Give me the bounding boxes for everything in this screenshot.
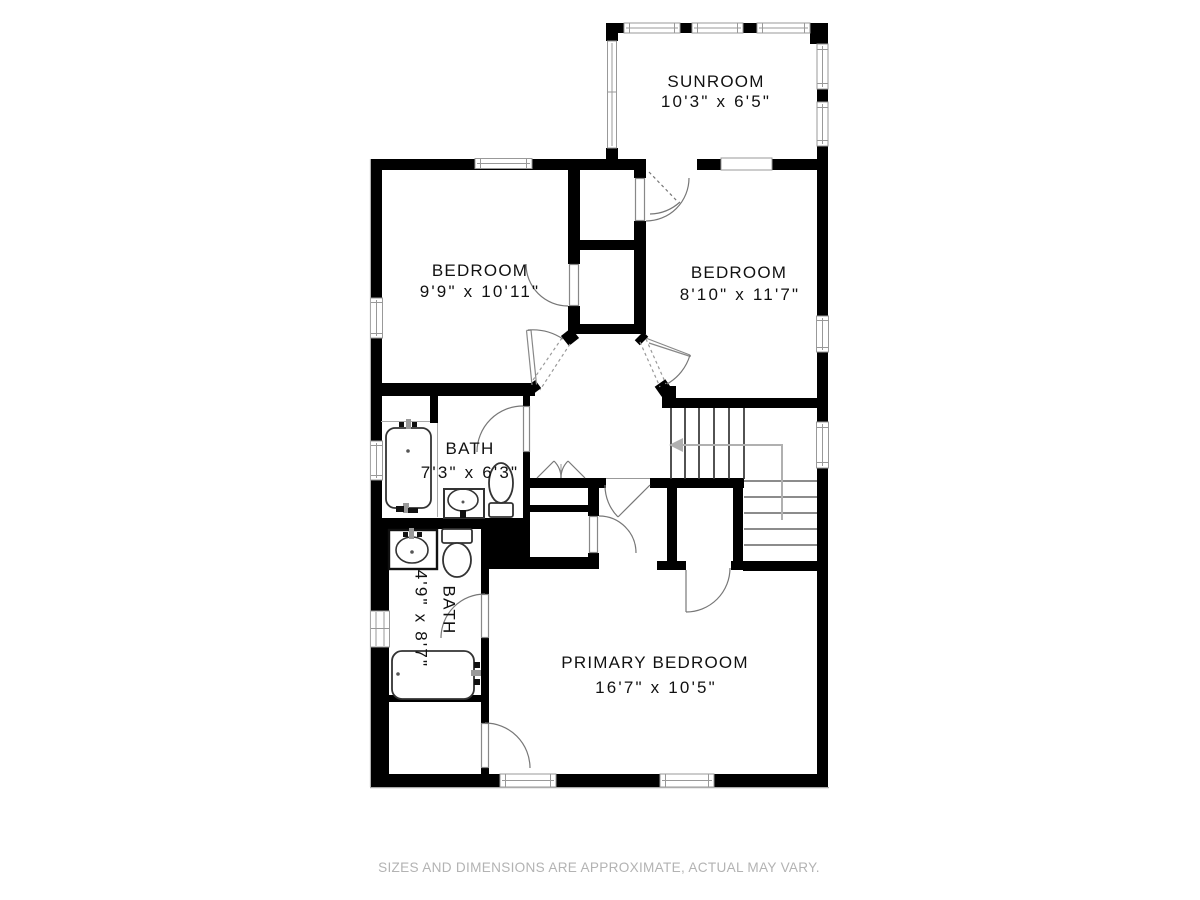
svg-text:PRIMARY BEDROOM: PRIMARY BEDROOM <box>561 653 748 672</box>
svg-text:10'3" x 6'5": 10'3" x 6'5" <box>661 92 771 111</box>
svg-text:8'10" x 11'7": 8'10" x 11'7" <box>680 285 801 304</box>
svg-text:BATH: BATH <box>440 586 459 635</box>
svg-text:BEDROOM: BEDROOM <box>432 261 528 280</box>
svg-text:7'3" x 6'3": 7'3" x 6'3" <box>421 463 520 482</box>
svg-text:SUNROOM: SUNROOM <box>667 72 764 91</box>
svg-text:SIZES AND DIMENSIONS ARE APPRO: SIZES AND DIMENSIONS ARE APPROXIMATE, AC… <box>378 860 820 875</box>
svg-text:BEDROOM: BEDROOM <box>691 263 787 282</box>
svg-text:16'7" x 10'5": 16'7" x 10'5" <box>595 678 717 697</box>
svg-text:9'9" x 10'11": 9'9" x 10'11" <box>420 282 541 301</box>
svg-text:4'9" x 8'7": 4'9" x 8'7" <box>412 570 431 669</box>
svg-text:BATH: BATH <box>446 439 495 458</box>
